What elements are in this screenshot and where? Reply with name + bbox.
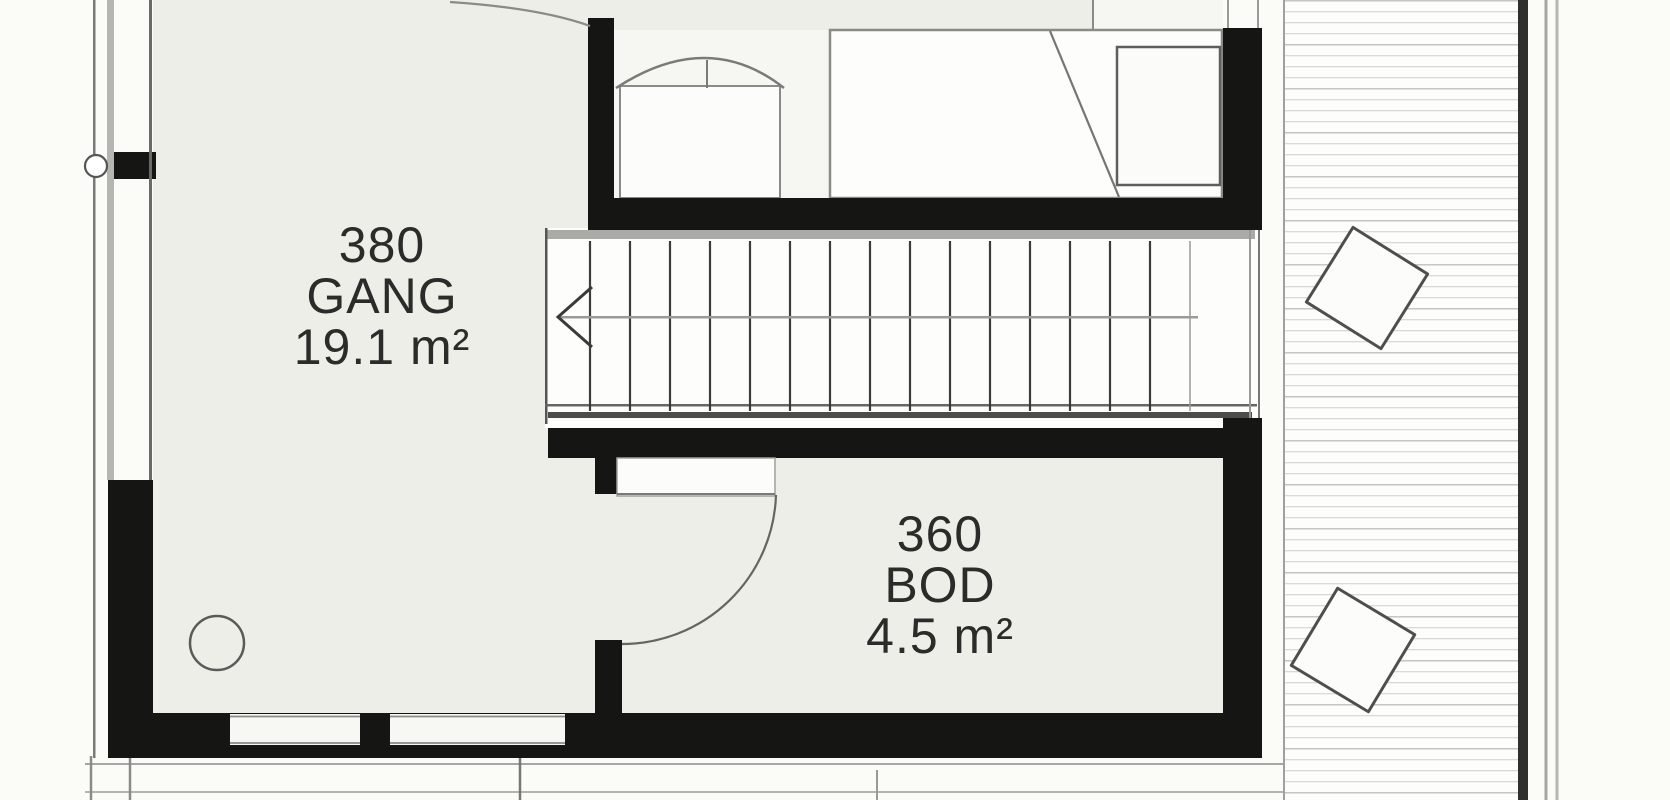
room-gang-number: 380 [339,217,425,273]
stair-top-edge [545,230,1255,239]
left-wall-inner-line [149,0,152,480]
room-gang-name: GANG [306,268,457,324]
room-gang-area: 19.1 m² [294,319,471,375]
wall-right-upper [1223,28,1262,230]
bed-pillow [1117,47,1220,185]
downpipe-symbol [85,155,107,177]
stair-well [545,228,1262,428]
left-wall-outer-line [93,0,96,758]
room-bod-number: 360 [897,506,983,562]
left-window-glazing [107,0,114,480]
wall-bod-door-bottom-stub [595,640,622,715]
floor-plan-canvas: 380 GANG 19.1 m² 360 BOD 4.5 m² [0,0,1670,800]
room-bod-area: 4.5 m² [866,608,1014,664]
stair-walkline [558,316,1198,319]
wall-left-lower [108,480,153,713]
bod-door-leaf [617,458,775,496]
stair-bottom-band [548,412,1252,418]
deck-right-edge [1518,0,1528,800]
wall-right-lower [1223,418,1262,758]
floor-plan-page: 380 GANG 19.1 m² 360 BOD 4.5 m² [0,0,1670,800]
stair-left-edge [545,228,548,424]
wall-above-stairs [588,198,1262,230]
deck-area [1283,0,1557,800]
staircase [545,228,1262,428]
curved-back-furniture [620,86,780,198]
bedroom-top-strip [614,0,1093,30]
room-bod-name: BOD [884,557,995,613]
bottom-windows [230,714,565,745]
bottom-window-2 [390,714,565,745]
bottom-window-1 [230,714,360,745]
wall-below-stairs [548,428,1262,458]
